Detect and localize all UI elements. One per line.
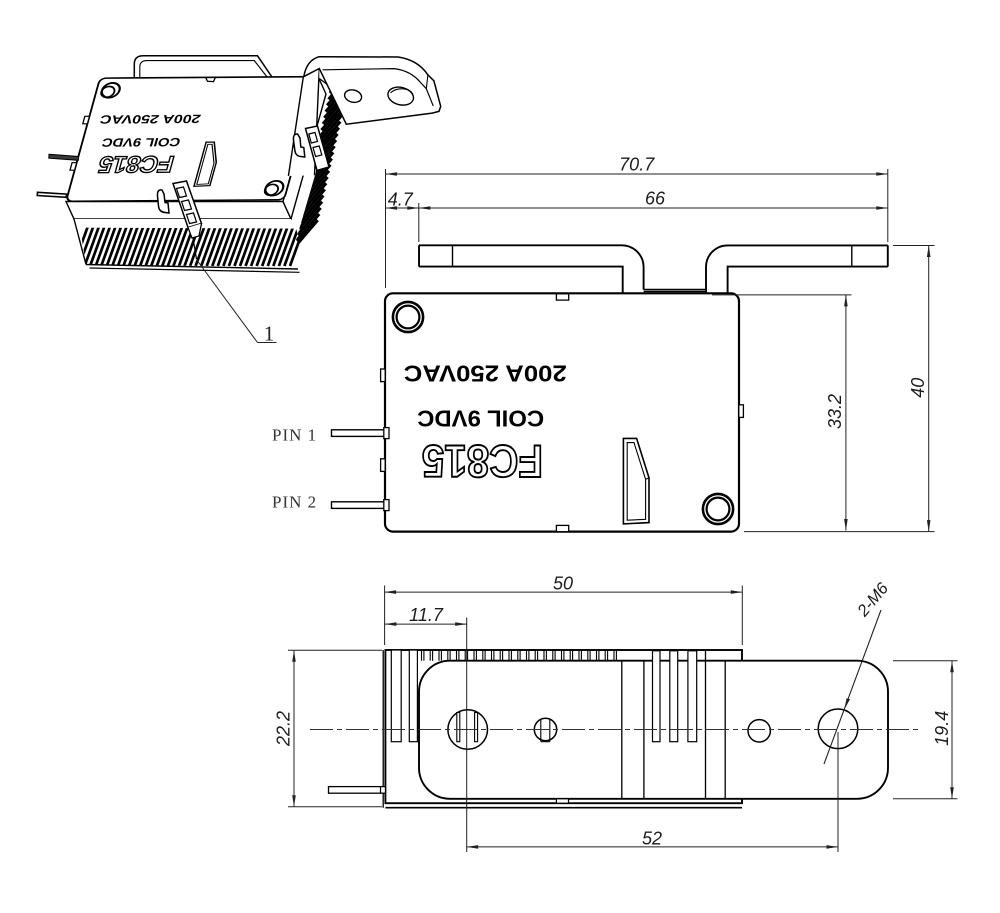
svg-text:COIL 9VDC: COIL 9VDC <box>100 135 182 149</box>
svg-text:COIL 9VDC: COIL 9VDC <box>417 405 544 431</box>
svg-text:52: 52 <box>642 828 662 848</box>
svg-text:66: 66 <box>645 189 666 209</box>
svg-text:11.7: 11.7 <box>409 605 444 625</box>
svg-text:50: 50 <box>553 574 573 594</box>
svg-text:FC815: FC815 <box>422 436 543 487</box>
svg-text:4.7: 4.7 <box>388 190 414 210</box>
svg-text:19.4: 19.4 <box>932 711 952 746</box>
svg-text:200A 250VAC: 200A 250VAC <box>98 112 203 126</box>
svg-text:1: 1 <box>264 322 275 346</box>
svg-text:40: 40 <box>908 378 928 398</box>
svg-text:FC815: FC815 <box>95 151 177 178</box>
svg-text:22.2: 22.2 <box>274 711 294 747</box>
svg-text:33.2: 33.2 <box>825 394 845 429</box>
svg-text:PIN 2: PIN 2 <box>272 493 317 512</box>
svg-text:70.7: 70.7 <box>619 155 655 175</box>
svg-text:200A 250VAC: 200A 250VAC <box>404 361 567 387</box>
svg-text:PIN 1: PIN 1 <box>272 426 317 445</box>
